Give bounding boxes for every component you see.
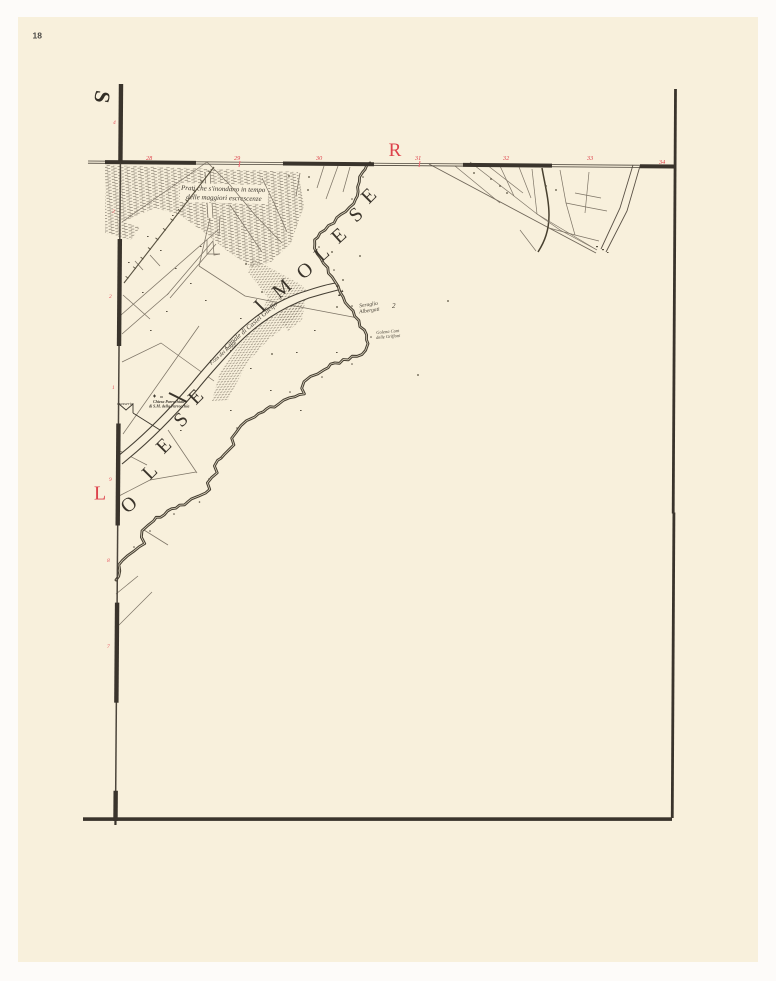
svg-text:3: 3 — [111, 209, 115, 215]
svg-text:29: 29 — [234, 155, 240, 162]
svg-text:34: 34 — [658, 159, 665, 166]
svg-text:7: 7 — [107, 644, 110, 650]
svg-text:33: 33 — [586, 155, 593, 162]
svg-text:18: 18 — [33, 31, 43, 41]
svg-text:di S.M. della Parrocchia: di S.M. della Parrocchia — [149, 404, 189, 409]
svg-text:8: 8 — [107, 558, 110, 564]
svg-text:L: L — [94, 483, 106, 505]
svg-text:31: 31 — [414, 155, 421, 162]
svg-text:4: 4 — [113, 119, 116, 126]
svg-text:2: 2 — [109, 294, 112, 300]
svg-text:30: 30 — [315, 155, 323, 162]
svg-text:9: 9 — [109, 477, 112, 483]
svg-text:R: R — [389, 140, 402, 161]
svg-text:28: 28 — [146, 155, 153, 162]
svg-text:32: 32 — [502, 155, 509, 162]
svg-text:1: 1 — [112, 385, 115, 391]
svg-text:2: 2 — [392, 302, 396, 310]
